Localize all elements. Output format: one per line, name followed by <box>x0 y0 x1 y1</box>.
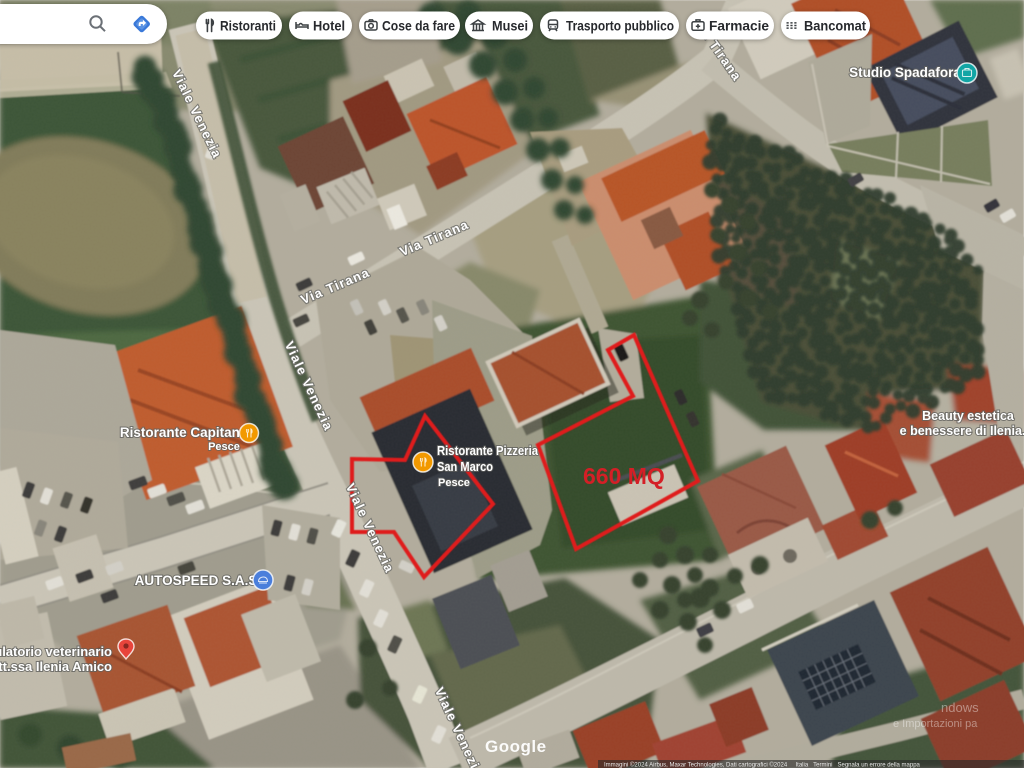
svg-text:San Marco: San Marco <box>437 459 493 474</box>
svg-text:Google: Google <box>485 737 547 756</box>
svg-text:Farmacie: Farmacie <box>709 18 769 34</box>
svg-text:Ristoranti: Ristoranti <box>220 18 276 34</box>
svg-text:Cose da fare: Cose da fare <box>382 18 455 34</box>
svg-text:AUTOSPEED S.A.S: AUTOSPEED S.A.S <box>135 573 258 588</box>
svg-text:Musei: Musei <box>492 18 528 34</box>
svg-text:e Importazioni pa: e Importazioni pa <box>893 718 978 730</box>
svg-text:Ristorante Pizzeria: Ristorante Pizzeria <box>437 443 539 458</box>
svg-text:Pesce: Pesce <box>208 441 240 453</box>
svg-text:Studio Spadafora: Studio Spadafora <box>849 65 961 80</box>
svg-text:mbulatorio veterinario: mbulatorio veterinario <box>0 644 112 659</box>
svg-text:ndows: ndows <box>941 700 979 715</box>
svg-text:Beauty estetica: Beauty estetica <box>922 409 1015 423</box>
svg-text:Pesce: Pesce <box>438 477 470 489</box>
svg-text:660 MQ: 660 MQ <box>583 463 665 489</box>
svg-text:Bancomat: Bancomat <box>804 18 866 34</box>
svg-text:Hotel: Hotel <box>313 18 345 34</box>
svg-text:e benessere di Ilenia...: e benessere di Ilenia... <box>900 424 1024 438</box>
svg-text:Immagini ©2024 Airbus, Maxar T: Immagini ©2024 Airbus, Maxar Technologie… <box>604 762 921 768</box>
svg-text:Ristorante Capitano: Ristorante Capitano <box>120 425 248 440</box>
svg-text:Dott.ssa Ilenia Amico: Dott.ssa Ilenia Amico <box>0 659 112 674</box>
svg-text:Trasporto pubblico: Trasporto pubblico <box>566 18 674 34</box>
